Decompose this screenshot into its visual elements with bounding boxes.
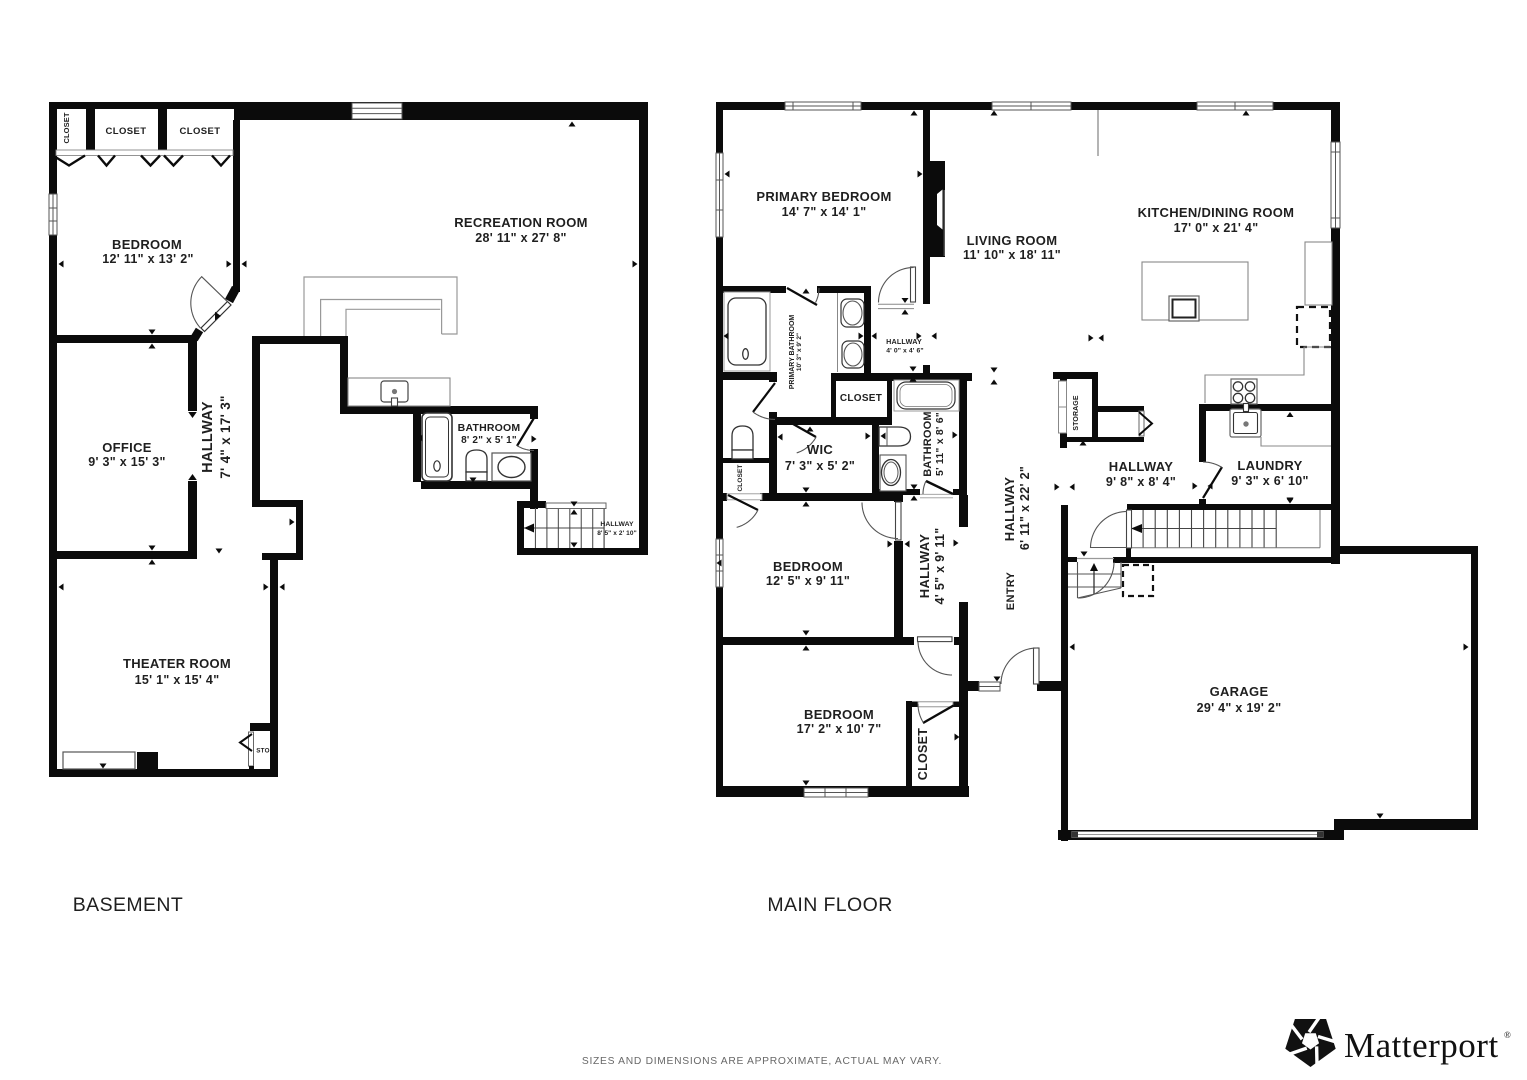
svg-text:HALLWAY: HALLWAY: [200, 401, 216, 473]
svg-text:12' 5" x 9' 11": 12' 5" x 9' 11": [766, 574, 850, 588]
svg-text:THEATER ROOM: THEATER ROOM: [123, 656, 231, 671]
svg-text:HALLWAY: HALLWAY: [886, 337, 922, 346]
svg-text:7' 4" x 17' 3": 7' 4" x 17' 3": [218, 395, 233, 478]
svg-text:HALLWAY: HALLWAY: [600, 521, 634, 528]
svg-text:CLOSET: CLOSET: [106, 126, 147, 137]
svg-text:CLOSET: CLOSET: [916, 728, 930, 781]
svg-text:CLOSET: CLOSET: [840, 393, 882, 404]
svg-text:12' 11" x 13' 2": 12' 11" x 13' 2": [102, 252, 193, 266]
svg-text:29' 4" x 19' 2": 29' 4" x 19' 2": [1197, 701, 1282, 715]
svg-text:CLOSET: CLOSET: [180, 126, 221, 137]
svg-text:17' 0" x 21' 4": 17' 0" x 21' 4": [1174, 221, 1259, 235]
svg-text:CLOSET: CLOSET: [62, 112, 71, 143]
svg-text:HALLWAY: HALLWAY: [1002, 477, 1017, 541]
svg-text:4' 5" x 9' 11": 4' 5" x 9' 11": [933, 528, 947, 605]
svg-text:17' 2" x 10' 7": 17' 2" x 10' 7": [797, 722, 882, 736]
svg-text:9' 3" x 15' 3": 9' 3" x 15' 3": [88, 455, 166, 469]
svg-text:SIZES AND DIMENSIONS ARE APPRO: SIZES AND DIMENSIONS ARE APPROXIMATE, AC…: [582, 1056, 942, 1067]
svg-text:HALLWAY: HALLWAY: [917, 534, 932, 598]
svg-text:11' 10" x 18' 11": 11' 10" x 18' 11": [963, 248, 1061, 262]
svg-text:28' 11" x 27' 8": 28' 11" x 27' 8": [475, 231, 566, 245]
svg-text:BEDROOM: BEDROOM: [773, 559, 843, 574]
svg-text:8' 2" x 5' 1": 8' 2" x 5' 1": [461, 435, 517, 446]
svg-text:LAUNDRY: LAUNDRY: [1237, 458, 1302, 473]
svg-text:9' 8" x 8' 4": 9' 8" x 8' 4": [1106, 475, 1176, 489]
svg-text:LIVING ROOM: LIVING ROOM: [967, 233, 1058, 248]
svg-text:14' 7" x 14' 1": 14' 7" x 14' 1": [782, 205, 867, 219]
svg-text:BASEMENT: BASEMENT: [73, 894, 183, 916]
svg-text:4' 0" x 4' 6": 4' 0" x 4' 6": [886, 348, 923, 355]
svg-text:PRIMARY BEDROOM: PRIMARY BEDROOM: [756, 189, 891, 204]
svg-text:9' 3" x 6' 10": 9' 3" x 6' 10": [1231, 474, 1309, 488]
svg-text:BEDROOM: BEDROOM: [112, 237, 182, 252]
svg-text:8' 5" x 2' 10": 8' 5" x 2' 10": [597, 530, 637, 537]
svg-text:7' 3" x 5' 2": 7' 3" x 5' 2": [785, 459, 855, 473]
svg-text:RECREATION ROOM: RECREATION ROOM: [454, 215, 588, 230]
svg-text:ENTRY: ENTRY: [1005, 571, 1017, 610]
svg-text:PRIMARY BATHROOM: PRIMARY BATHROOM: [789, 315, 796, 390]
svg-text:5' 11" x 8' 6": 5' 11" x 8' 6": [934, 412, 946, 476]
svg-text:GARAGE: GARAGE: [1210, 684, 1269, 699]
svg-text:BEDROOM: BEDROOM: [804, 707, 874, 722]
svg-text:BATHROOM: BATHROOM: [458, 422, 521, 434]
svg-text:MAIN FLOOR: MAIN FLOOR: [767, 894, 892, 916]
svg-text:OFFICE: OFFICE: [102, 440, 151, 455]
svg-text:STO: STO: [256, 748, 269, 755]
svg-text:WIC: WIC: [807, 442, 833, 457]
svg-text:Matterport: Matterport: [1344, 1026, 1499, 1065]
svg-text:10' 3" x 9' 2": 10' 3" x 9' 2": [796, 333, 803, 371]
svg-text:15' 1" x 15' 4": 15' 1" x 15' 4": [135, 673, 220, 687]
svg-text:KITCHEN/DINING ROOM: KITCHEN/DINING ROOM: [1138, 205, 1295, 220]
svg-text:BATHROOM: BATHROOM: [922, 411, 934, 477]
svg-text:®: ®: [1504, 1030, 1511, 1040]
svg-text:HALLWAY: HALLWAY: [1109, 459, 1173, 474]
svg-text:CLOSET: CLOSET: [737, 465, 744, 492]
svg-text:6' 11" x 22' 2": 6' 11" x 22' 2": [1018, 466, 1032, 550]
svg-text:STORAGE: STORAGE: [1073, 395, 1080, 430]
